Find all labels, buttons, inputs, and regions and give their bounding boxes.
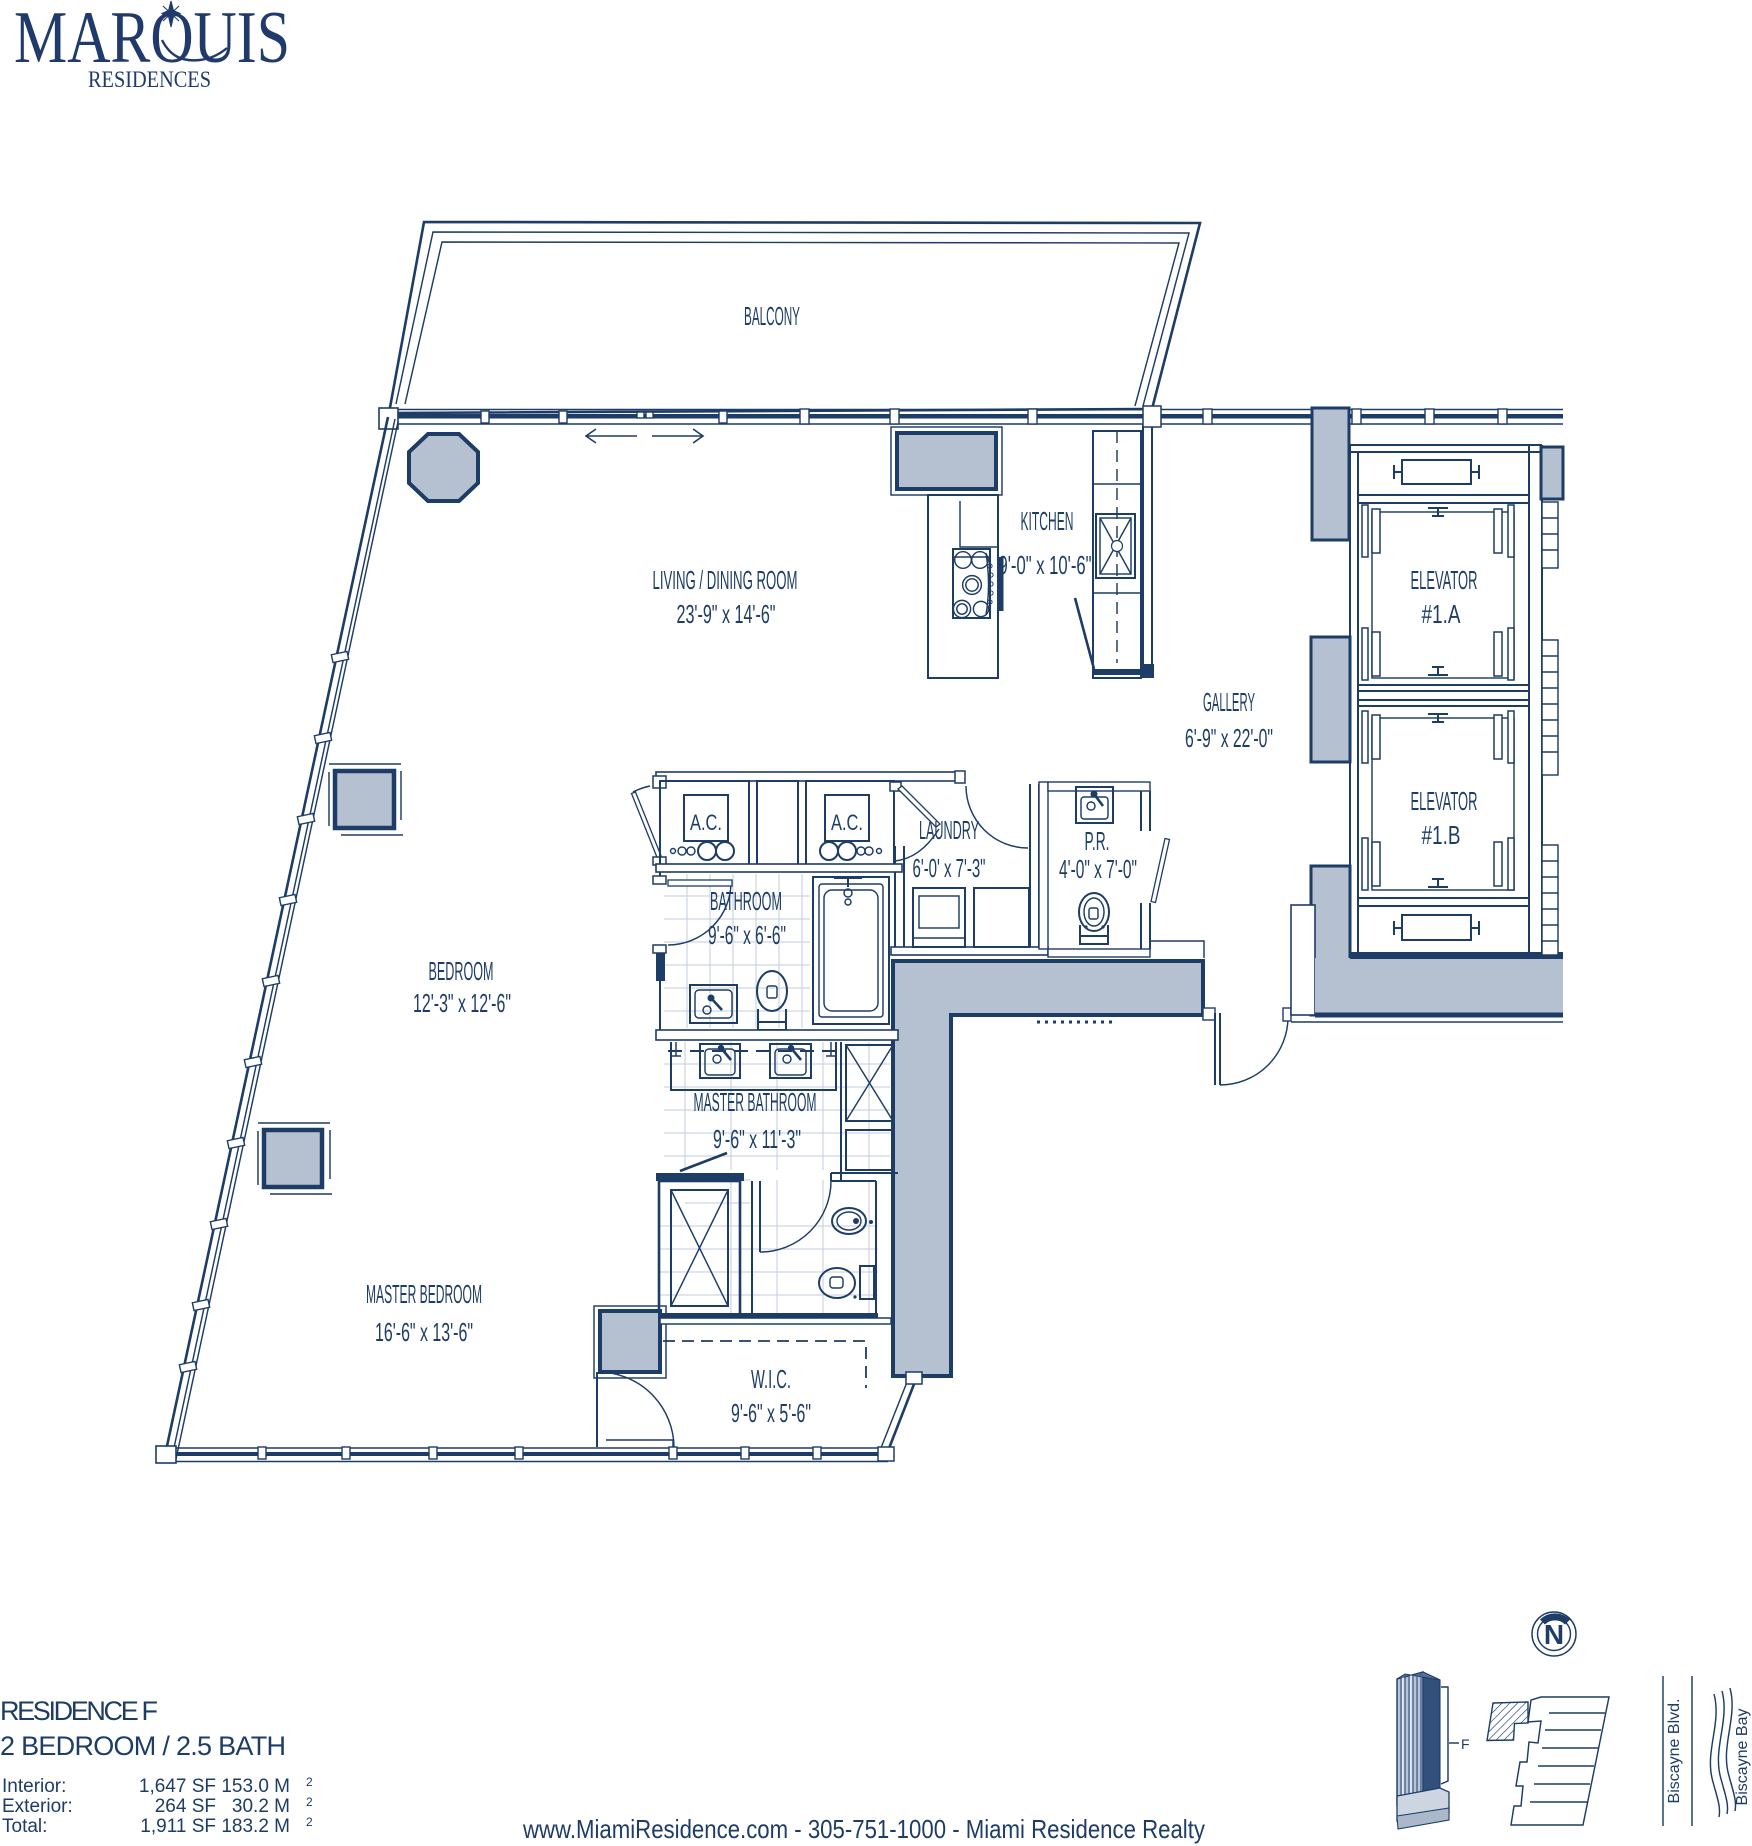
- svg-text:2: 2: [306, 1815, 313, 1829]
- svg-text:153.0 M: 153.0 M: [221, 1776, 290, 1797]
- svg-text:#1.A: #1.A: [1422, 599, 1461, 629]
- svg-text:Biscayne Blvd.: Biscayne Blvd.: [1666, 1699, 1683, 1804]
- svg-text:ELEVATOR: ELEVATOR: [1411, 565, 1478, 595]
- svg-text:9'-6" x 5'-6": 9'-6" x 5'-6": [731, 1398, 811, 1428]
- svg-text:6'-9" x 22'-0": 6'-9" x 22'-0": [1185, 723, 1273, 753]
- svg-text:www.MiamiResidence.com - 305: www.MiamiResidence.com - 305-751-1000 - …: [522, 1814, 1205, 1844]
- svg-text:P.R.: P.R.: [1085, 826, 1110, 856]
- svg-text:9'-6" x 6'-6": 9'-6" x 6'-6": [708, 920, 786, 950]
- svg-text:264 SF: 264 SF: [155, 1796, 216, 1817]
- svg-text:BALCONY: BALCONY: [744, 301, 800, 331]
- svg-text:RESIDENCES: RESIDENCES: [88, 67, 211, 92]
- svg-text:Total:: Total:: [2, 1816, 47, 1837]
- svg-text:LAUNDRY: LAUNDRY: [919, 815, 979, 845]
- svg-text:A.C.: A.C.: [831, 810, 863, 835]
- svg-text:6'-0' x 7'-3": 6'-0' x 7'-3": [913, 853, 986, 883]
- svg-text:2: 2: [306, 1795, 313, 1809]
- svg-text:A.C.: A.C.: [690, 810, 722, 835]
- svg-text:Exterior:: Exterior:: [2, 1796, 73, 1817]
- svg-text:1,647 SF: 1,647 SF: [139, 1776, 216, 1797]
- svg-text:1,911 SF: 1,911 SF: [140, 1816, 216, 1837]
- svg-text:MASTER BATHROOM: MASTER BATHROOM: [694, 1087, 817, 1117]
- svg-text:4'-0" x 7'-0": 4'-0" x 7'-0": [1059, 854, 1137, 884]
- svg-text:Biscayne Bay: Biscayne Bay: [1734, 1709, 1751, 1806]
- svg-text:BEDROOM: BEDROOM: [429, 956, 494, 986]
- svg-text:Interior:: Interior:: [2, 1776, 66, 1797]
- svg-text:9'-0" x 10'-6": 9'-0" x 10'-6": [999, 550, 1092, 580]
- svg-text:9'-6" x 11'-3": 9'-6" x 11'-3": [713, 1124, 801, 1154]
- svg-text:W.I.C.: W.I.C.: [751, 1364, 791, 1394]
- svg-text:RESIDENCE F: RESIDENCE F: [0, 1696, 158, 1726]
- svg-text:ELEVATOR: ELEVATOR: [1411, 786, 1478, 816]
- svg-text:16'-6" x 13'-6": 16'-6" x 13'-6": [375, 1317, 473, 1347]
- svg-text:2 BEDROOM / 2.5 BATH: 2 BEDROOM / 2.5 BATH: [0, 1731, 286, 1761]
- svg-text:BATHROOM: BATHROOM: [710, 886, 782, 916]
- svg-text:30.2 M: 30.2 M: [232, 1796, 290, 1817]
- svg-text:#1.B: #1.B: [1422, 820, 1461, 850]
- svg-text:F: F: [1461, 1736, 1470, 1752]
- svg-text:23'-9" x 14'-6": 23'-9" x 14'-6": [677, 599, 776, 629]
- svg-text:N: N: [1544, 1619, 1564, 1650]
- svg-text:2: 2: [306, 1775, 313, 1789]
- svg-text:183.2 M: 183.2 M: [221, 1816, 290, 1837]
- svg-text:KITCHEN: KITCHEN: [1021, 506, 1074, 536]
- svg-text:12'-3" x 12'-6": 12'-3" x 12'-6": [413, 988, 511, 1018]
- svg-text:GALLERY: GALLERY: [1203, 687, 1255, 717]
- svg-text:MASTER BEDROOM: MASTER BEDROOM: [366, 1279, 482, 1309]
- svg-text:LIVING / DINING ROOM: LIVING / DINING ROOM: [653, 565, 798, 595]
